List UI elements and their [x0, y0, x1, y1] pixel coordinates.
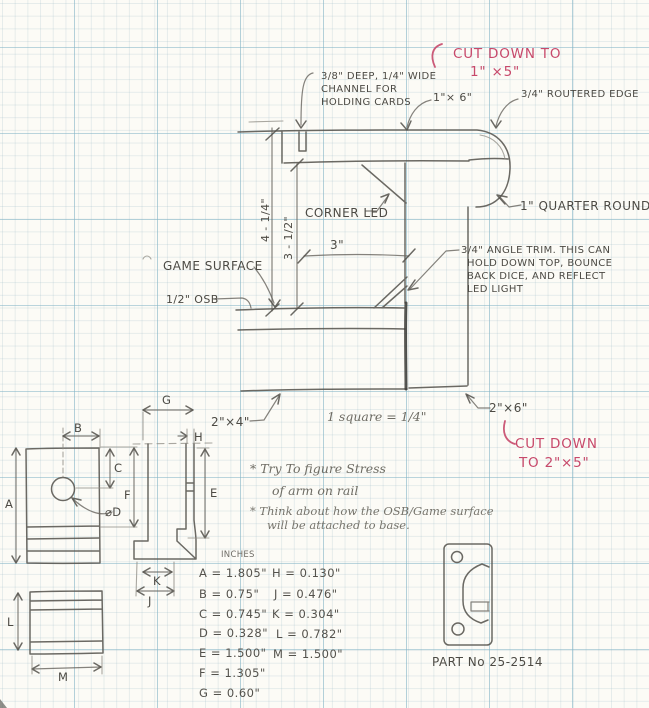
rail-cross-section-drawing: [143, 121, 510, 391]
dim-h-value: H = 0.130": [272, 566, 341, 580]
dim-e-value: E = 1.500": [199, 646, 266, 660]
stack-outline: [30, 591, 103, 654]
red-note-bottom-line1: CUT DOWN: [515, 436, 598, 452]
note-stress-line1: * Try To figure Stress: [250, 461, 386, 476]
corner-led-label: CORNER LED: [305, 206, 388, 220]
hole-circle: [52, 478, 75, 501]
dim-g-value: G = 0.60": [199, 686, 260, 700]
red-note-bottom-line2: TO 2"×5": [518, 455, 589, 471]
angle-trim-note-line3: BACK DICE, AND REFLECT: [467, 271, 606, 282]
letter-c: C: [114, 461, 122, 475]
letter-f: F: [124, 488, 131, 502]
dim-width-label: 3": [330, 238, 344, 252]
letter-g: G: [162, 393, 171, 407]
profile-outline: [134, 444, 196, 559]
dim-m-value: M = 1.500": [273, 647, 343, 661]
letter-d: ⌀D: [105, 505, 121, 519]
front-view-drawing: [12, 428, 138, 563]
letter-j: J: [147, 594, 152, 608]
red-note-top-line2: 1" ×5": [470, 64, 520, 80]
part-c-cutout: [463, 564, 489, 623]
angle-trim-note-line1: 3/4" ANGLE TRIM. THIS CAN: [461, 245, 610, 256]
letter-k: K: [153, 574, 161, 588]
part-drawing: [444, 544, 492, 645]
channel-note-line3: HOLDING CARDS: [321, 97, 411, 108]
scan-smudge: [0, 699, 7, 708]
red-hook-bottom: [504, 421, 515, 444]
dim-table-header: INCHES: [221, 550, 255, 560]
letter-a: A: [5, 497, 13, 511]
part-number-label: PART No 25-2514: [432, 655, 543, 669]
letter-h: H: [194, 430, 203, 444]
note-attach-line1: * Think about how the OSB/Game surface: [250, 504, 494, 518]
note-attach-line2: will be attached to base.: [267, 518, 410, 532]
channel-note-line2: CHANNEL FOR: [321, 84, 397, 95]
front-view-arrowheads: [12, 432, 138, 563]
angle-trim-note-line4: LED LIGHT: [467, 284, 524, 295]
dim-j-value: J = 0.476": [273, 587, 338, 601]
stack-arrowheads: [14, 593, 101, 673]
dim-d-value: D = 0.328": [199, 626, 268, 640]
graph-paper: 3/8" DEEP, 1/4" WIDE CHANNEL FOR HOLDING…: [0, 0, 649, 708]
letter-l: L: [7, 615, 14, 629]
part-hole-top: [452, 552, 463, 563]
board-1x6-label: 1"× 6": [433, 91, 472, 104]
game-surface-label: GAME SURFACE: [163, 259, 263, 273]
sketch-svg: 3/8" DEEP, 1/4" WIDE CHANNEL FOR HOLDING…: [0, 0, 649, 708]
channel-note-line1: 3/8" DEEP, 1/4" WIDE: [321, 71, 436, 82]
routered-edge-label: 3/4" ROUTERED EDGE: [521, 89, 639, 100]
dim-b-value: B = 0.75": [199, 587, 259, 601]
board-2x6-label: 2"×6": [489, 401, 528, 415]
stray-pencil-marks: [143, 121, 505, 259]
dim-k-value: K = 0.304": [272, 607, 340, 621]
part-hole-bottom: [452, 623, 464, 635]
note-stress-line2: of arm on rail: [272, 483, 358, 498]
letter-m: M: [58, 670, 68, 684]
red-note-top-line1: CUT DOWN TO: [453, 46, 561, 62]
part-slot: [471, 602, 489, 611]
red-bracket-top: [432, 44, 442, 67]
angle-trim-note-line2: HOLD DOWN TOP, BOUNCE: [467, 258, 612, 269]
red-ink-marks: [432, 44, 515, 444]
dim-c-value: C = 0.745": [199, 607, 267, 621]
dim-inner-height-label: 3 - 1/2": [282, 216, 295, 260]
scale-note: 1 square = 1/4": [327, 409, 427, 424]
stack-view-drawing: [14, 591, 103, 674]
letter-b: B: [74, 421, 82, 435]
osb-label: 1/2" OSB: [166, 293, 219, 306]
dim-a-value: A = 1.805": [199, 566, 267, 580]
letter-e: E: [210, 486, 218, 500]
dim-f-value: F = 1.305": [199, 666, 266, 680]
dim-outer-height-label: 4 - 1/4": [259, 198, 272, 242]
quarter-round-label: 1" QUARTER ROUND: [520, 199, 649, 213]
dim-l-value: L = 0.782": [276, 627, 343, 641]
board-2x4-label: 2"×4": [211, 415, 250, 429]
